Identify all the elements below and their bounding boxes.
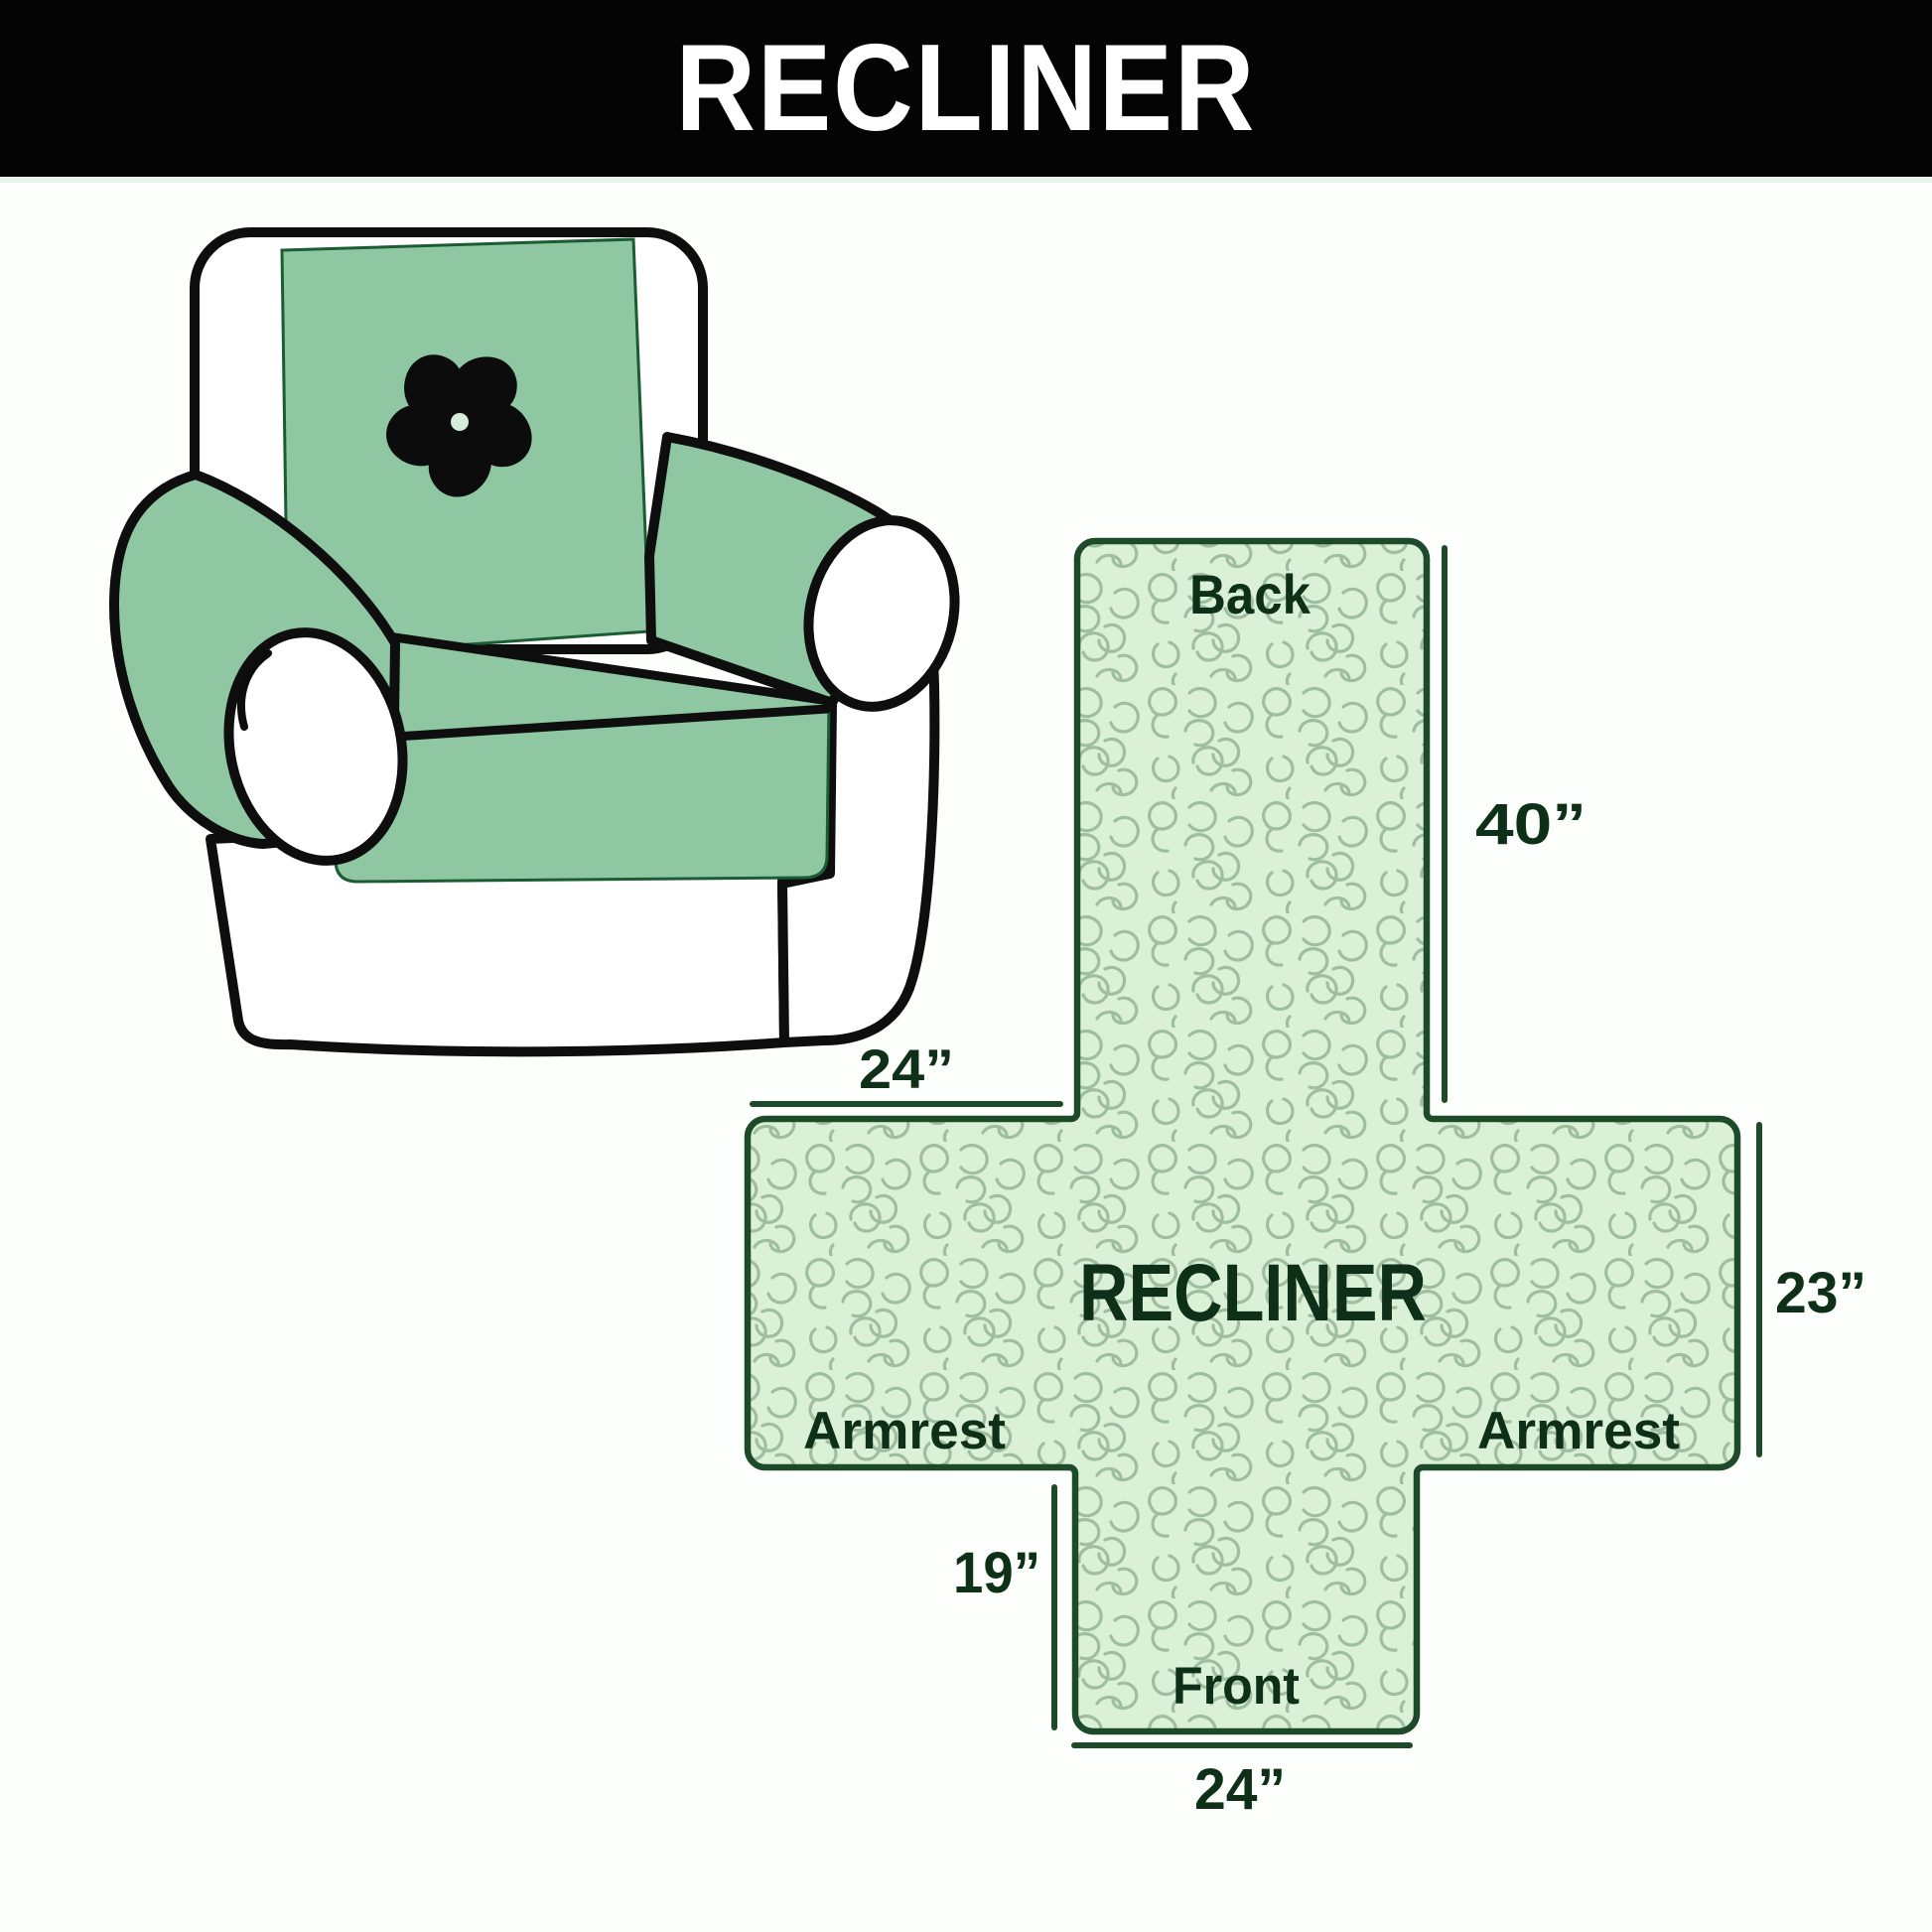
label-center-recliner: RECLINER (1079, 1248, 1427, 1338)
dimension-front-width: 24” (1194, 1757, 1286, 1822)
label-front: Front (1173, 1657, 1300, 1716)
label-back: Back (1189, 563, 1311, 625)
label-armrest-left: Armrest (803, 1402, 1006, 1460)
armchair-illustration (114, 232, 974, 1051)
label-armrest-right: Armrest (1477, 1402, 1680, 1460)
dimension-back-height: 40” (1475, 792, 1587, 857)
infographic: Back RECLINER Armrest Armrest Front 40” … (0, 0, 1932, 1932)
dimension-front-flap-height: 19” (953, 1541, 1040, 1605)
page: RECLINER (0, 0, 1932, 1932)
dimension-side-height: 23” (1775, 1261, 1866, 1325)
dimension-armrest-top-width: 24” (859, 1037, 954, 1100)
